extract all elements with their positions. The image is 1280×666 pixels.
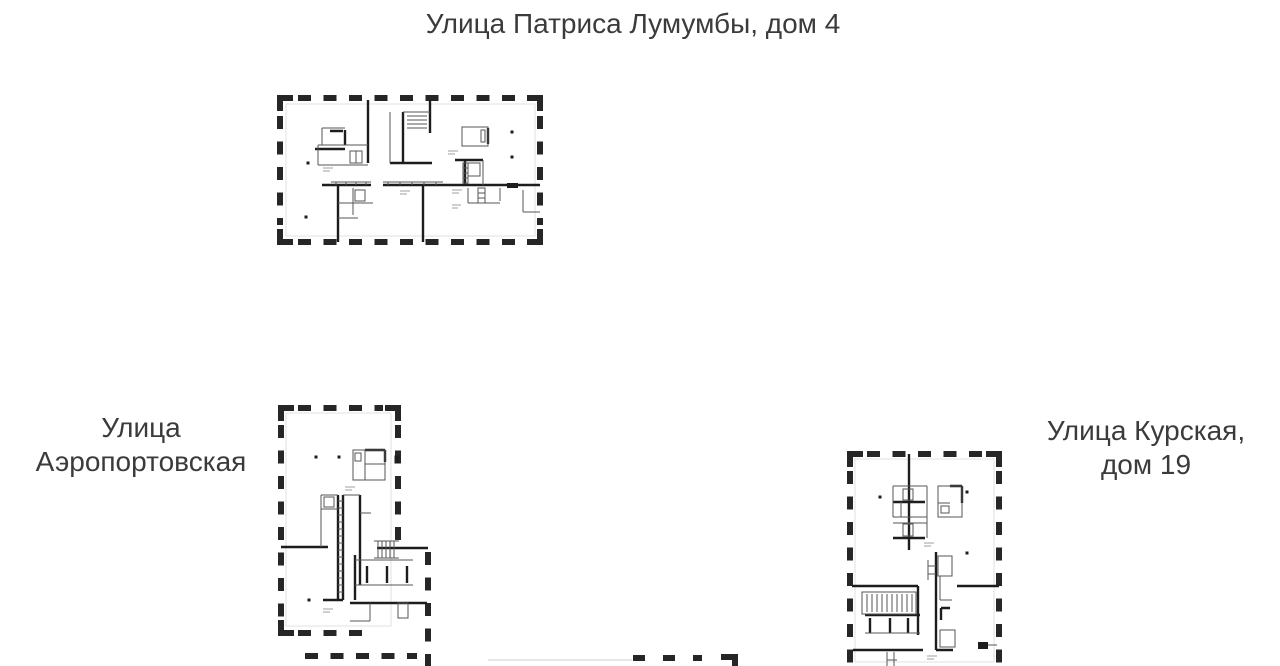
floor-plan-partial-bottom[interactable]	[478, 648, 760, 666]
street-label-aeroportovskaya-line2: Аэропортовская	[36, 445, 247, 479]
plan-walls	[281, 450, 428, 603]
floor-plan-aeroportovskaya-drawing	[277, 402, 433, 666]
site-plan-canvas: Улица Патриса Лумумбы, дом 4 Улица Аэроп…	[0, 0, 1280, 666]
floor-plan-patrisa-lumumby-4-drawing	[276, 94, 546, 246]
plan-column-dots	[305, 131, 519, 219]
street-label-kurskaya-19: Улица Курская, дом 19	[1047, 414, 1245, 482]
street-label-kurskaya-19-line1: Улица Курская,	[1047, 414, 1245, 448]
floor-plan-patrisa-lumumby-4[interactable]	[276, 94, 546, 246]
street-label-aeroportovskaya: Улица Аэропортовская	[36, 411, 247, 479]
plan-faint-outline	[855, 459, 994, 662]
street-label-patrisa-lumumby-4: Улица Патриса Лумумбы, дом 4	[426, 7, 841, 41]
plan-partitions	[862, 486, 997, 666]
plan-walls	[315, 100, 540, 242]
floor-plan-partial-bottom-drawing	[478, 648, 760, 666]
plan-boundary	[281, 408, 428, 666]
plan-annotation-marks	[323, 151, 462, 208]
plan-column-dots	[879, 491, 989, 650]
street-label-kurskaya-19-line2: дом 19	[1047, 448, 1245, 482]
floor-plan-aeroportovskaya[interactable]	[277, 402, 433, 666]
plan-walls	[852, 454, 999, 650]
floor-plan-kurskaya-19[interactable]	[846, 448, 1006, 666]
floor-plan-kurskaya-19-drawing	[846, 448, 1006, 666]
plan-boundary	[633, 657, 738, 666]
street-label-aeroportovskaya-line1: Улица	[36, 411, 247, 445]
plan-boundary	[850, 454, 999, 663]
